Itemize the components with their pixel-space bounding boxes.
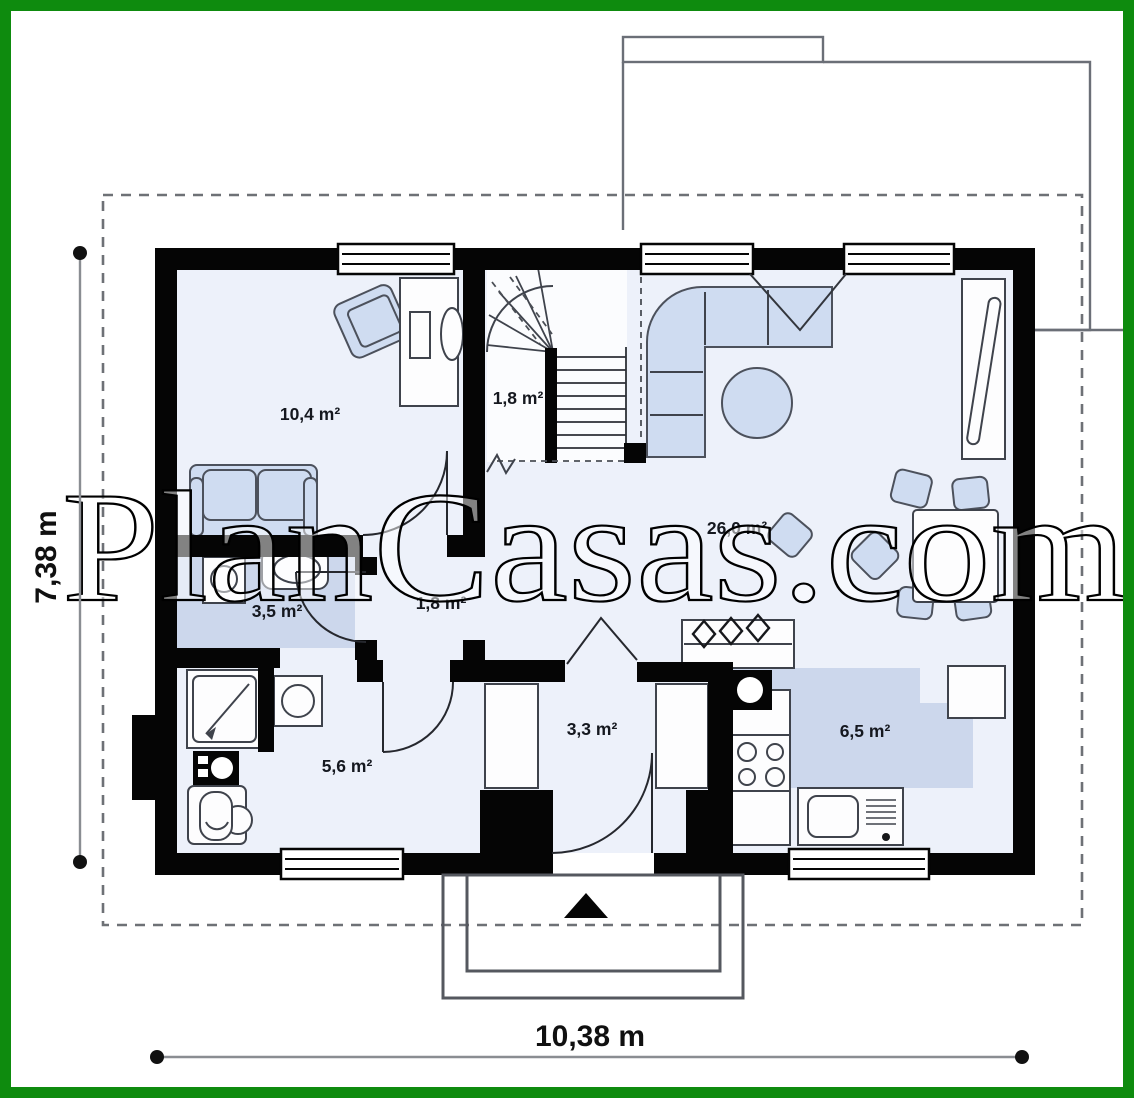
- room-area-label-staircase: 1,8 m²: [493, 388, 544, 408]
- tall-cabinet: [962, 279, 1005, 459]
- boiler-icon: [188, 786, 252, 844]
- desk: [400, 278, 463, 406]
- kitchen-counter: [731, 791, 790, 845]
- floor-plan-drawing: 10,4 m² 1,8 m² 26,0 m² 3,5 m² 1,8 m² 5,6…: [0, 0, 1134, 1098]
- room-area-label-bedroom: 10,4 m²: [280, 404, 340, 424]
- chimney-stub: [132, 715, 157, 800]
- window: [844, 244, 954, 274]
- window: [641, 244, 753, 274]
- entrance-opening: [553, 853, 654, 875]
- height-dimension-label: 7,38 m: [30, 510, 63, 603]
- desk-chair: [441, 308, 463, 360]
- watermark-text: PlanCasas.com: [62, 460, 1127, 635]
- width-dimension-label: 10,38 m: [535, 1020, 645, 1053]
- fridge: [948, 666, 1005, 718]
- floor-plan-page: 10,4 m² 1,8 m² 26,0 m² 3,5 m² 1,8 m² 5,6…: [0, 0, 1134, 1098]
- washing-machine-icon: [274, 676, 322, 726]
- room-area-label-vestibule: 3,3 m²: [567, 719, 618, 739]
- stair-stringer: [545, 348, 557, 463]
- window: [789, 849, 929, 879]
- kitchen-basin-icon: [798, 788, 903, 845]
- window: [338, 244, 454, 274]
- utility-sink-icon: [193, 751, 239, 785]
- stove-icon: [731, 735, 790, 791]
- room-area-label-kitchen: 6,5 m²: [840, 721, 891, 741]
- window: [281, 849, 403, 879]
- shower-icon: [187, 670, 262, 748]
- room-area-label-utility: 5,6 m²: [322, 756, 373, 776]
- wardrobe: [485, 684, 538, 788]
- round-table: [722, 368, 792, 438]
- wardrobe: [656, 684, 708, 788]
